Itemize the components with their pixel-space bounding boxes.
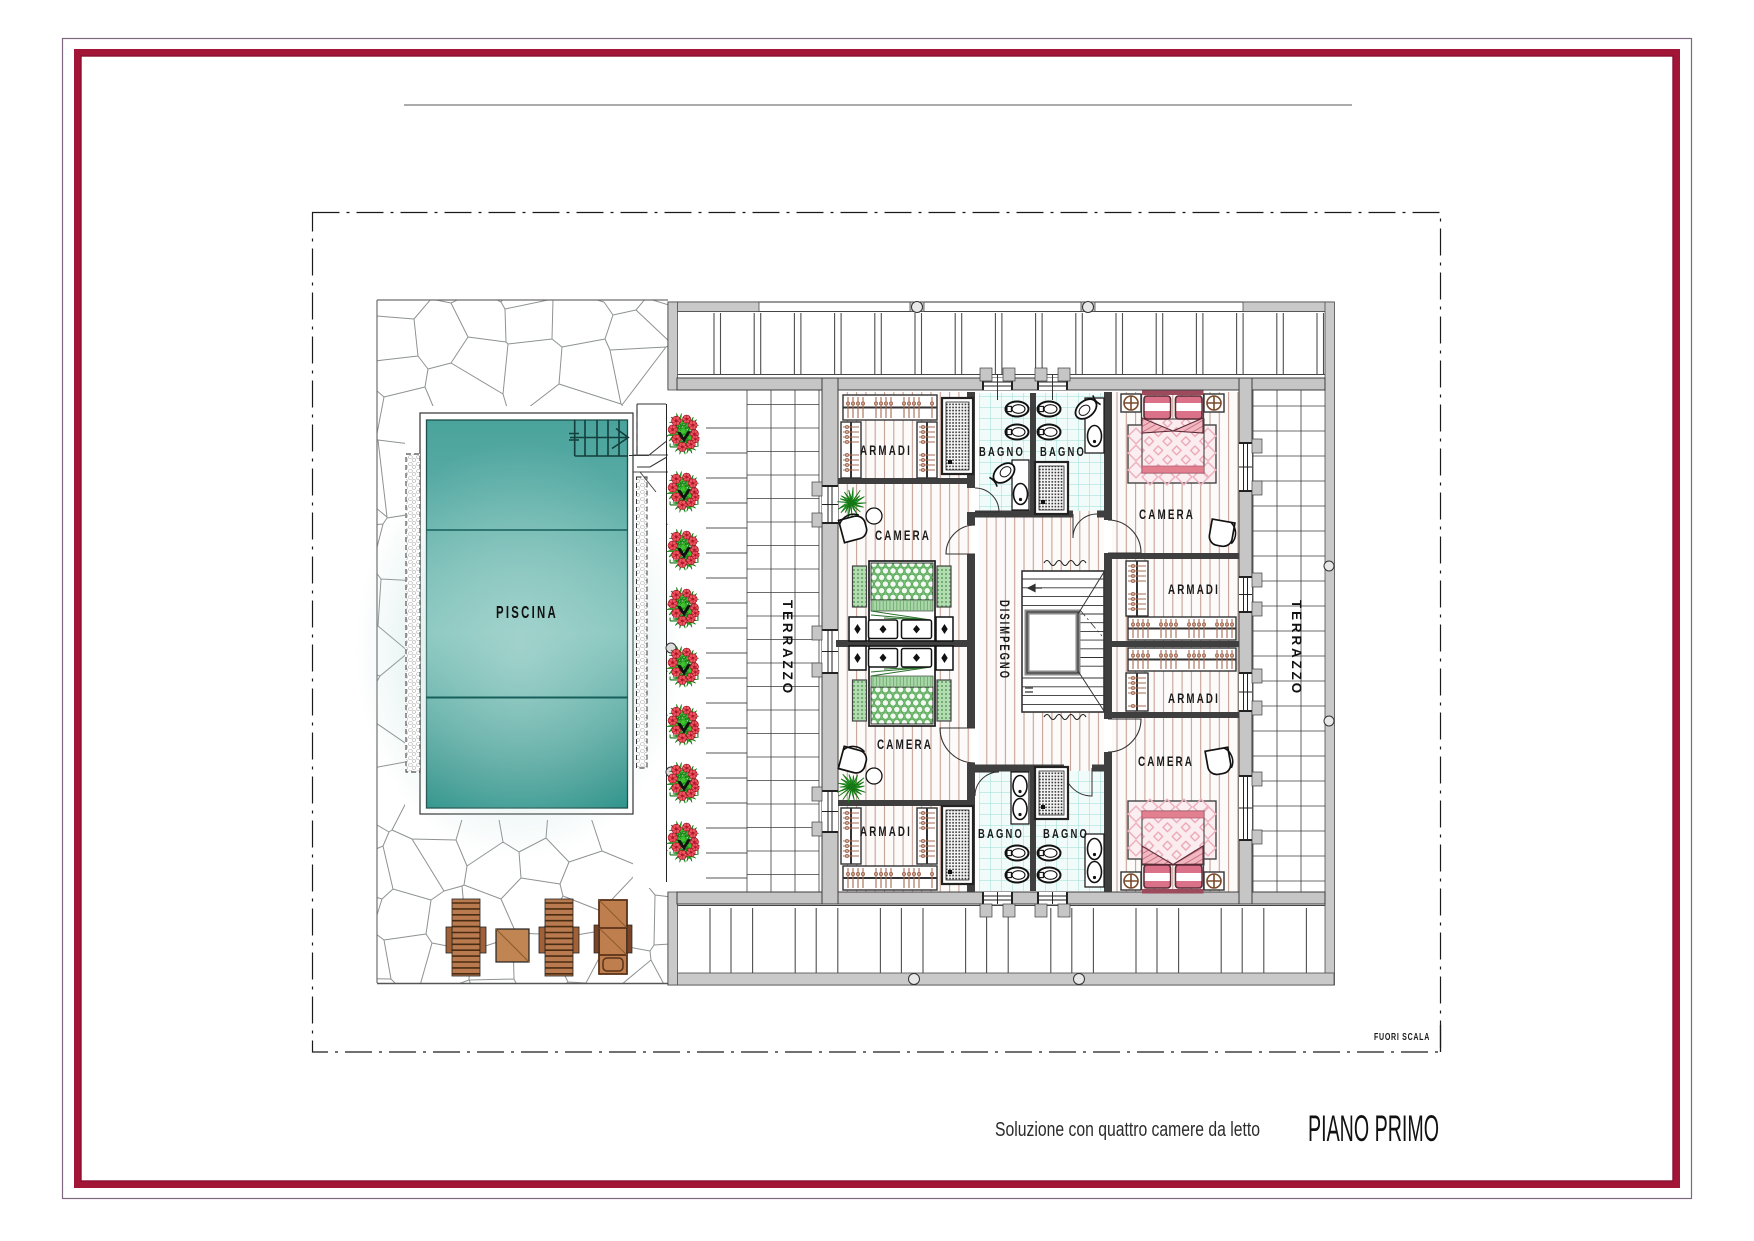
svg-text:BAGNO: BAGNO (1040, 444, 1086, 459)
svg-text:CAMERA: CAMERA (877, 736, 933, 752)
svg-text:BAGNO: BAGNO (978, 826, 1024, 841)
svg-text:CAMERA: CAMERA (875, 527, 931, 543)
svg-text:CAMERA: CAMERA (1138, 753, 1194, 769)
svg-text:TERRAZZO: TERRAZZO (1289, 600, 1305, 696)
svg-text:DISIMPEGNO: DISIMPEGNO (997, 600, 1013, 680)
svg-text:PISCINA: PISCINA (496, 602, 558, 622)
svg-text:TERRAZZO: TERRAZZO (780, 600, 796, 696)
svg-text:ARMADI: ARMADI (1168, 582, 1220, 597)
svg-text:PIANO PRIMO: PIANO PRIMO (1308, 1108, 1439, 1149)
svg-text:BAGNO: BAGNO (979, 444, 1025, 459)
svg-text:ARMADI: ARMADI (860, 443, 912, 458)
svg-text:CAMERA: CAMERA (1139, 506, 1195, 522)
svg-text:FUORI SCALA: FUORI SCALA (1374, 1032, 1430, 1043)
svg-text:ARMADI: ARMADI (1168, 691, 1220, 706)
svg-text:BAGNO: BAGNO (1043, 826, 1089, 841)
svg-text:ARMADI: ARMADI (860, 824, 912, 839)
svg-text:Soluzione con quattro camere d: Soluzione con quattro camere da letto (995, 1119, 1260, 1141)
